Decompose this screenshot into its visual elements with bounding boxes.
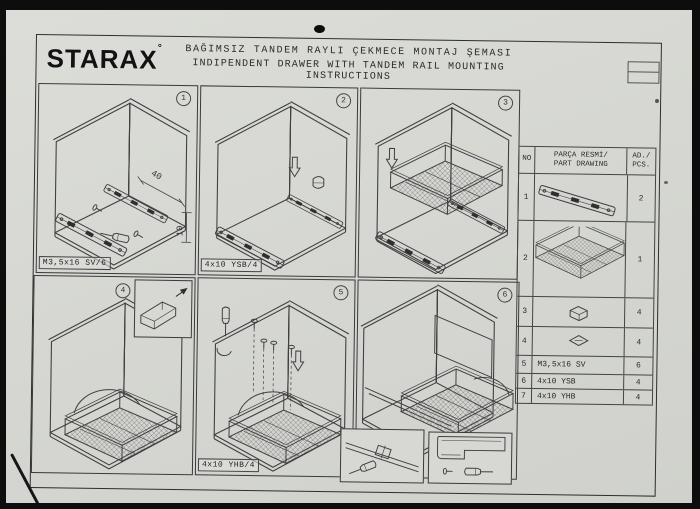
scan-edge-top — [0, 0, 700, 10]
screw-icon — [443, 468, 452, 474]
cabinet-drawing — [213, 101, 350, 272]
logo-text: STARAX — [46, 43, 157, 75]
table-row: 5 M3,5x16 SV 6 — [516, 356, 652, 376]
tandem-rail-drawing — [534, 177, 627, 218]
step-5-drawing — [196, 278, 355, 476]
basket-handle-arc — [238, 391, 303, 416]
parts-table: NO PARÇA RESMİ/ PART DRAWING AD./ PCS. 1 — [515, 146, 657, 406]
part-spec-text: 4x10 YSB — [532, 374, 624, 389]
wire-basket-drawing — [390, 141, 503, 215]
down-arrow-icon — [289, 157, 300, 177]
title-turkish: BAĞIMSIZ TANDEM RAYLI ÇEKMECE MONTAJ ŞEM… — [167, 44, 531, 60]
screwdriver-icon — [465, 468, 493, 475]
step-1-drawing: 40 10 — [37, 84, 198, 274]
rail-drawing — [286, 194, 343, 229]
scan-edge-right — [692, 0, 700, 509]
table-row: 2 1 — [517, 221, 654, 299]
scanned-instruction-sheet: { "header": { "logo": "STARAX", "logo_ma… — [0, 0, 700, 509]
plastic-clip-drawing — [567, 303, 591, 321]
screw-spec-label: M3,5x16 SV/6 — [39, 256, 111, 270]
screw-spec-label: 4x10 YSB/4 — [201, 258, 262, 272]
step-3-drawing — [359, 89, 520, 279]
step-2-panel: 2 4x10 YSB/4 — [198, 85, 359, 277]
title-english: INDIPENDENT DRAWER WITH TANDEM RAIL MOUN… — [166, 58, 530, 85]
cover-cap-drawing — [567, 334, 589, 348]
scan-edge-left — [0, 0, 6, 509]
col-no-header: NO — [519, 147, 535, 173]
scan-speck-artifact — [655, 99, 659, 103]
direction-arrow-icon — [176, 288, 188, 297]
registered-mark: ° — [158, 43, 163, 54]
clip-icon — [313, 177, 324, 189]
hook-icon — [217, 348, 231, 356]
step-2-drawing — [199, 86, 358, 276]
screwdriver-icon — [222, 307, 229, 336]
cabinet-drawing — [52, 97, 191, 270]
table-row: 3 4 — [517, 297, 653, 329]
scan-speck-artifact — [664, 181, 668, 184]
step-1-panel: 40 10 1 M3,5x16 SV/6 — [36, 83, 199, 275]
document-frame: STARAX° BAĞIMSIZ TANDEM RAYLI ÇEKMECE MO… — [30, 34, 662, 497]
drawer-back-panel — [434, 315, 492, 377]
down-arrow-icon — [293, 351, 304, 371]
wire-basket-drawing — [401, 365, 514, 439]
screw-icon — [133, 230, 144, 240]
parts-table-header: NO PARÇA RESMİ/ PART DRAWING AD./ PCS. — [519, 147, 655, 176]
wire-basket-drawing — [534, 225, 625, 292]
table-row: 7 4x10 YHB 4 — [516, 389, 652, 405]
scan-speck-artifact — [314, 25, 325, 33]
svg-text:10: 10 — [175, 226, 185, 237]
part-spec-text: M3,5x16 SV — [532, 356, 624, 374]
screw-spec-label: 4x10 YHB/4 — [198, 458, 259, 472]
sheet-title: BAĞIMSIZ TANDEM RAYLI ÇEKMECE MONTAJ ŞEM… — [166, 44, 530, 85]
wire-basket-drawing — [65, 388, 178, 462]
rail-adjust-drawing — [341, 429, 424, 482]
starax-logo: STARAX° — [46, 43, 162, 76]
step-4-panel: 4 — [31, 275, 196, 475]
step-number-badge: 3 — [498, 95, 513, 110]
bracket-detail-drawing — [135, 280, 192, 337]
drawer-front-drawing — [429, 433, 512, 484]
step-5-panel: 5 4x10 YHB/4 — [195, 277, 356, 477]
step-number-badge: 2 — [336, 93, 351, 108]
scanned-paper: STARAX° BAĞIMSIZ TANDEM RAYLI ÇEKMECE MO… — [6, 10, 692, 503]
step-number-badge: 1 — [176, 91, 191, 106]
part-spec-text: 4x10 YHB — [532, 389, 624, 404]
basket-handle-arc — [74, 389, 140, 414]
step-3-panel: 3 — [358, 88, 521, 280]
wire-basket-drawing — [229, 391, 342, 465]
drawer-front-detail-inset — [428, 432, 513, 485]
step-number-badge: 4 — [115, 283, 130, 298]
revision-cell — [629, 62, 659, 72]
col-qty-header: AD./ PCS. — [627, 148, 655, 174]
dimension-10: 10 — [175, 213, 191, 243]
table-row: 4 4 — [517, 327, 653, 358]
col-drawing-header: PARÇA RESMİ/ PART DRAWING — [535, 147, 627, 174]
revision-cell — [628, 72, 658, 82]
svg-text:40: 40 — [149, 169, 163, 183]
revision-box — [627, 61, 659, 83]
rail-adjust-detail-inset — [340, 428, 425, 483]
rail-drawing — [55, 213, 127, 257]
table-row: 1 2 — [518, 174, 655, 223]
down-arrow-icon — [386, 148, 397, 168]
scan-edge-bottom — [0, 503, 700, 509]
screwdriver-icon — [348, 460, 377, 477]
bracket-detail-inset — [134, 279, 193, 338]
dimension-40: 40 — [137, 168, 185, 206]
rail-drawing — [375, 231, 446, 274]
